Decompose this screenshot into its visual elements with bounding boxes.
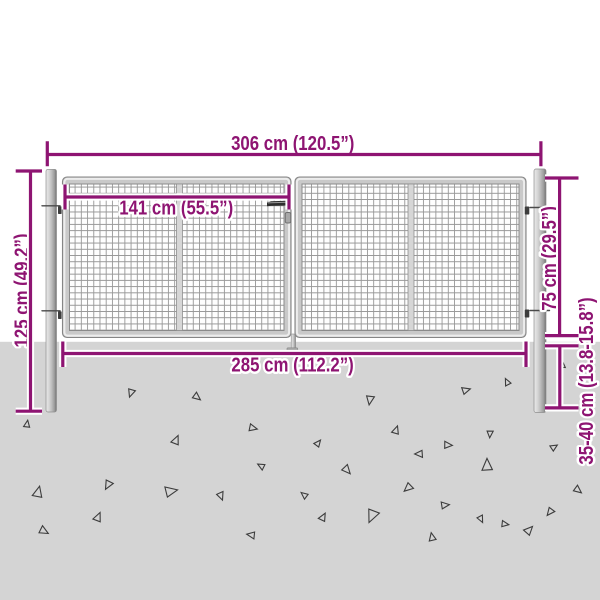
svg-text:306 cm (120.5”): 306 cm (120.5”) bbox=[231, 132, 354, 155]
svg-text:35-40 cm (13.8-15.8”): 35-40 cm (13.8-15.8”) bbox=[574, 297, 597, 464]
